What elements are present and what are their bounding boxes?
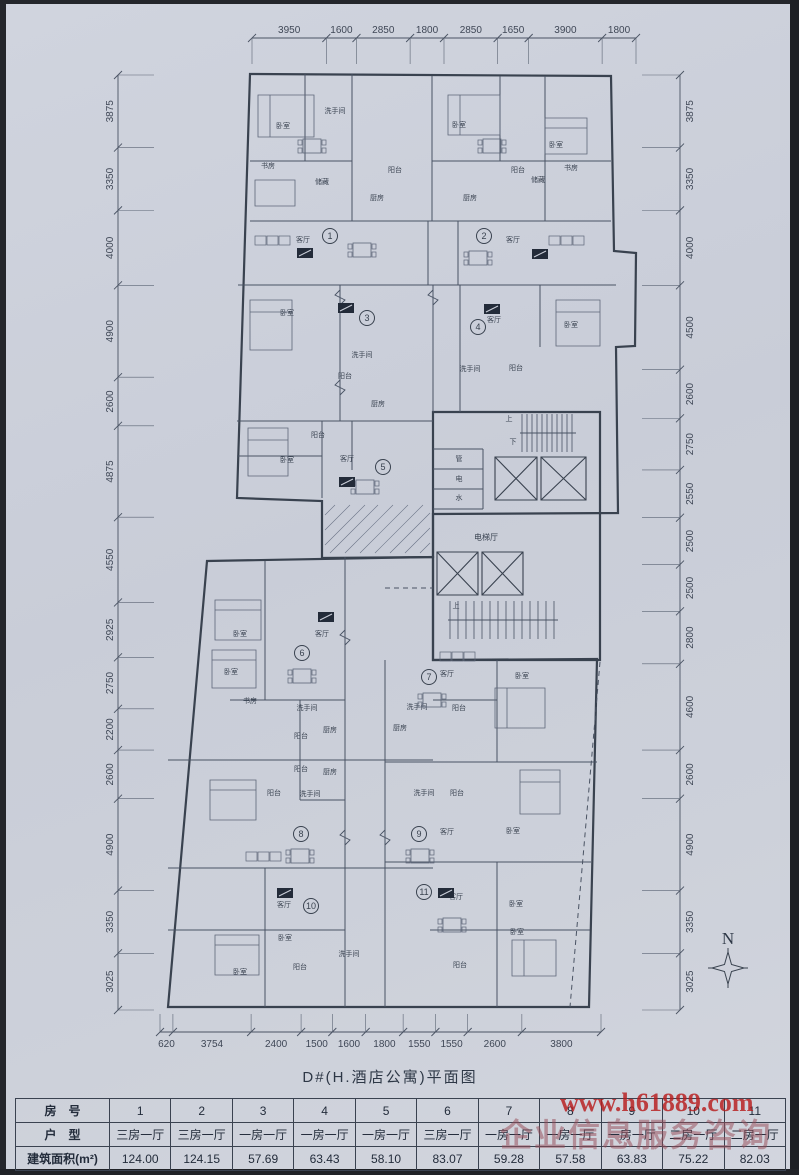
room-label: 客厅 (340, 454, 354, 463)
chair-icon (464, 260, 468, 265)
chair-icon (372, 244, 376, 249)
room-label: 阳台 (509, 363, 523, 372)
chair-icon (298, 148, 302, 153)
unit-number: 1 (327, 231, 332, 241)
dining-table-icon (291, 849, 309, 863)
dimension-label: 3025 (105, 970, 116, 993)
room-label: 卧室 (233, 967, 247, 976)
dimension-label: 4900 (685, 833, 696, 856)
chair-icon (488, 252, 492, 257)
room-label: 阳台 (511, 165, 525, 174)
dimension-label: 2800 (685, 626, 696, 649)
compass-n-label: N (722, 929, 734, 948)
room-label: 洗手间 (325, 106, 346, 115)
dimension-label: 1550 (408, 1039, 431, 1050)
row-header: 房 号 (16, 1099, 110, 1123)
table-cell: 2 (171, 1099, 232, 1123)
room-label: 客厅 (296, 235, 310, 244)
chair-icon (312, 678, 316, 683)
dimension-label: 2600 (105, 763, 116, 786)
unit-number: 10 (306, 901, 316, 911)
dining-table-icon (293, 669, 311, 683)
dimension-label: 1600 (338, 1039, 361, 1050)
chair-icon (478, 140, 482, 145)
room-label: 阳台 (294, 731, 308, 740)
floorplan-drawing: N 39501600285018002850165039001800620375… (0, 0, 799, 1060)
dimension-label: 2400 (265, 1039, 288, 1050)
room-label: 阳台 (267, 788, 281, 797)
chair-icon (375, 481, 379, 486)
dining-table-icon (483, 139, 501, 153)
dimension-label: 2750 (105, 671, 116, 694)
dimension-label: 1800 (608, 25, 631, 36)
dimension-label: 4500 (685, 316, 696, 339)
room-label: 上 (453, 601, 460, 610)
dimension-label: 2850 (372, 25, 395, 36)
room-label: 厨房 (371, 399, 385, 408)
room-label: 洗手间 (300, 789, 321, 798)
dimension-label: 2550 (685, 482, 696, 505)
sofa-icon (270, 852, 281, 861)
room-label: 客厅 (487, 315, 501, 324)
sofa-icon (549, 236, 560, 245)
room-label: 管 (456, 454, 463, 463)
room-label: 书房 (261, 161, 275, 170)
dimension-label: 2750 (685, 433, 696, 456)
row-header: 户 型 (16, 1123, 110, 1147)
dining-table-icon (469, 251, 487, 265)
table-cell: 三房一厅 (171, 1123, 232, 1147)
dimension-label: 1500 (306, 1039, 329, 1050)
dimension-label: 3350 (685, 167, 696, 190)
dimension-label: 3875 (105, 100, 116, 123)
room-label: 电 (456, 474, 463, 483)
chair-icon (418, 694, 422, 699)
dimension-label: 2600 (484, 1039, 507, 1050)
room-label: 卧室 (280, 308, 294, 317)
chair-icon (372, 252, 376, 257)
chair-icon (286, 858, 290, 863)
room-label: 洗手间 (352, 350, 373, 359)
chair-icon (286, 850, 290, 855)
room-label: 厨房 (323, 767, 337, 776)
chair-icon (348, 244, 352, 249)
room-label: 电梯厅 (474, 532, 498, 542)
chair-icon (312, 670, 316, 675)
room-label: 水 (456, 493, 463, 502)
compass: N (708, 929, 748, 988)
table-cell: 三房一厅 (417, 1123, 478, 1147)
dimension-label: 4550 (105, 548, 116, 571)
dimension-label: 4900 (105, 320, 116, 343)
room-label: 客厅 (440, 827, 454, 836)
plan-annotations: 3950160028501800285016503900180062037542… (105, 25, 696, 1050)
room-label: 阳台 (294, 764, 308, 773)
table-cell: 58.10 (355, 1147, 416, 1171)
room-label: 卧室 (549, 140, 563, 149)
unit-number: 5 (380, 462, 385, 472)
sofa-icon (246, 852, 257, 861)
table-cell: 1 (110, 1099, 171, 1123)
dimension-label: 1800 (416, 25, 439, 36)
chair-icon (462, 919, 466, 924)
table-cell: 63.43 (294, 1147, 355, 1171)
room-label: 卧室 (515, 671, 529, 680)
room-label: 储藏 (315, 177, 329, 186)
room-label: 书房 (243, 696, 257, 705)
sofa-icon (573, 236, 584, 245)
room-label: 卧室 (280, 455, 294, 464)
chair-icon (288, 678, 292, 683)
dimension-label: 1550 (440, 1039, 463, 1050)
chair-icon (442, 694, 446, 699)
room-label: 阳台 (452, 703, 466, 712)
room-label: 卧室 (510, 927, 524, 936)
room-label: 阳台 (453, 960, 467, 969)
dining-table-icon (411, 849, 429, 863)
room-label: 阳台 (293, 962, 307, 971)
room-label: 厨房 (463, 193, 477, 202)
row-header: 建筑面积(m²) (16, 1147, 110, 1171)
sofa-icon (279, 236, 290, 245)
chair-icon (406, 850, 410, 855)
dimension-label: 2850 (460, 25, 483, 36)
table-cell: 124.00 (110, 1147, 171, 1171)
unit-number: 2 (481, 231, 486, 241)
bed-icons (210, 95, 600, 976)
chair-icon (375, 489, 379, 494)
dimension-label: 4600 (685, 695, 696, 718)
watermark-text: 企业信息服务咨询 (500, 1110, 772, 1156)
dimension-label: 3950 (278, 25, 301, 36)
dining-table-icon (356, 480, 374, 494)
dimension-label: 2600 (105, 390, 116, 413)
room-label: 卧室 (564, 320, 578, 329)
dimension-label: 2925 (105, 618, 116, 641)
table-cell: 124.15 (171, 1147, 232, 1171)
dimension-label: 620 (158, 1039, 175, 1050)
dimension-label: 4875 (105, 460, 116, 483)
unit-number: 3 (364, 313, 369, 323)
room-label: 卧室 (276, 121, 290, 130)
dimension-label: 3025 (685, 970, 696, 993)
chair-icon (322, 140, 326, 145)
room-label: 阳台 (311, 430, 325, 439)
room-label: 厨房 (393, 723, 407, 732)
room-label: 客厅 (440, 669, 454, 678)
sofa-icon (267, 236, 278, 245)
room-label: 卧室 (452, 120, 466, 129)
chair-icon (310, 858, 314, 863)
room-label: 卧室 (224, 667, 238, 676)
dimension-label: 2600 (685, 763, 696, 786)
dimension-label: 1600 (330, 25, 353, 36)
chair-icon (478, 148, 482, 153)
room-label: 洗手间 (407, 702, 428, 711)
dimension-label: 4000 (105, 236, 116, 259)
room-label: 书房 (564, 163, 578, 172)
sofa-icon (255, 236, 266, 245)
table-cell: 57.69 (232, 1147, 293, 1171)
room-label: 洗手间 (460, 364, 481, 373)
room-label: 卧室 (506, 826, 520, 835)
dimension-label: 3350 (105, 167, 116, 190)
chair-icon (464, 252, 468, 257)
unit-number: 9 (416, 829, 421, 839)
table-cell: 4 (294, 1099, 355, 1123)
chair-icon (438, 919, 442, 924)
room-label: 客厅 (277, 900, 291, 909)
table-cell: 一房一厅 (355, 1123, 416, 1147)
sofa-icon (258, 852, 269, 861)
unit-number: 11 (419, 887, 428, 897)
unit-number: 8 (298, 829, 303, 839)
dimension-label: 1650 (502, 25, 525, 36)
room-label: 厨房 (323, 725, 337, 734)
walkway-hatch (325, 505, 430, 553)
dimension-label: 4900 (105, 833, 116, 856)
dimension-label: 1800 (373, 1039, 396, 1050)
chair-icon (442, 702, 446, 707)
dimension-label: 3900 (554, 25, 577, 36)
room-label: 洗手间 (297, 703, 318, 712)
chair-icon (310, 850, 314, 855)
room-label: 上 (506, 414, 513, 423)
dimension-label: 2600 (685, 382, 696, 405)
unit-number: 4 (475, 322, 480, 332)
room-label: 阳台 (450, 788, 464, 797)
unit-number: 6 (299, 648, 304, 658)
room-label: 洗手间 (414, 788, 435, 797)
chair-icon (502, 148, 506, 153)
chair-icon (298, 140, 302, 145)
chair-icon (288, 670, 292, 675)
dimension-label: 3754 (201, 1039, 224, 1050)
dimension-label: 2500 (685, 530, 696, 553)
table-cell: 三房一厅 (110, 1123, 171, 1147)
room-label: 储藏 (531, 175, 545, 184)
dining-table-icon (353, 243, 371, 257)
dimension-label: 2500 (685, 576, 696, 599)
room-label: 卧室 (509, 899, 523, 908)
table-cell: 5 (355, 1099, 416, 1123)
unit-number: 7 (426, 672, 431, 682)
room-label: 阳台 (388, 165, 402, 174)
dimension-label: 3875 (685, 100, 696, 123)
chair-icon (488, 260, 492, 265)
dimension-label: 4000 (685, 236, 696, 259)
drawing-title: D#(H.酒店公寓)平面图 (0, 1066, 780, 1087)
dimension-label: 3350 (105, 910, 116, 933)
dashed-lines (385, 588, 600, 1007)
room-label: 卧室 (233, 629, 247, 638)
chair-icon (348, 252, 352, 257)
chair-icon (322, 148, 326, 153)
room-label: 下 (510, 438, 517, 446)
room-label: 客厅 (506, 235, 520, 244)
dining-table-icon (303, 139, 321, 153)
dimension-label: 3800 (550, 1039, 573, 1050)
room-label: 客厅 (315, 629, 329, 638)
table-cell: 83.07 (417, 1147, 478, 1171)
table-cell: 一房一厅 (232, 1123, 293, 1147)
room-label: 洗手间 (339, 949, 360, 958)
room-label: 卧室 (278, 933, 292, 942)
room-label: 阳台 (338, 371, 352, 380)
chair-icon (430, 850, 434, 855)
table-cell: 6 (417, 1099, 478, 1123)
dimension-label: 2200 (105, 718, 116, 741)
dimension-label: 3350 (685, 910, 696, 933)
table-cell: 3 (232, 1099, 293, 1123)
plan-outer-walls (168, 74, 636, 1007)
chair-icon (502, 140, 506, 145)
stairs-icon (448, 414, 576, 639)
table-cell: 一房一厅 (294, 1123, 355, 1147)
chair-icon (351, 489, 355, 494)
room-label: 厨房 (370, 193, 384, 202)
scanned-floorplan-page: N 39501600285018002850165039001800620375… (0, 0, 799, 1175)
sofa-icon (561, 236, 572, 245)
plan-interior-walls (168, 74, 616, 1007)
